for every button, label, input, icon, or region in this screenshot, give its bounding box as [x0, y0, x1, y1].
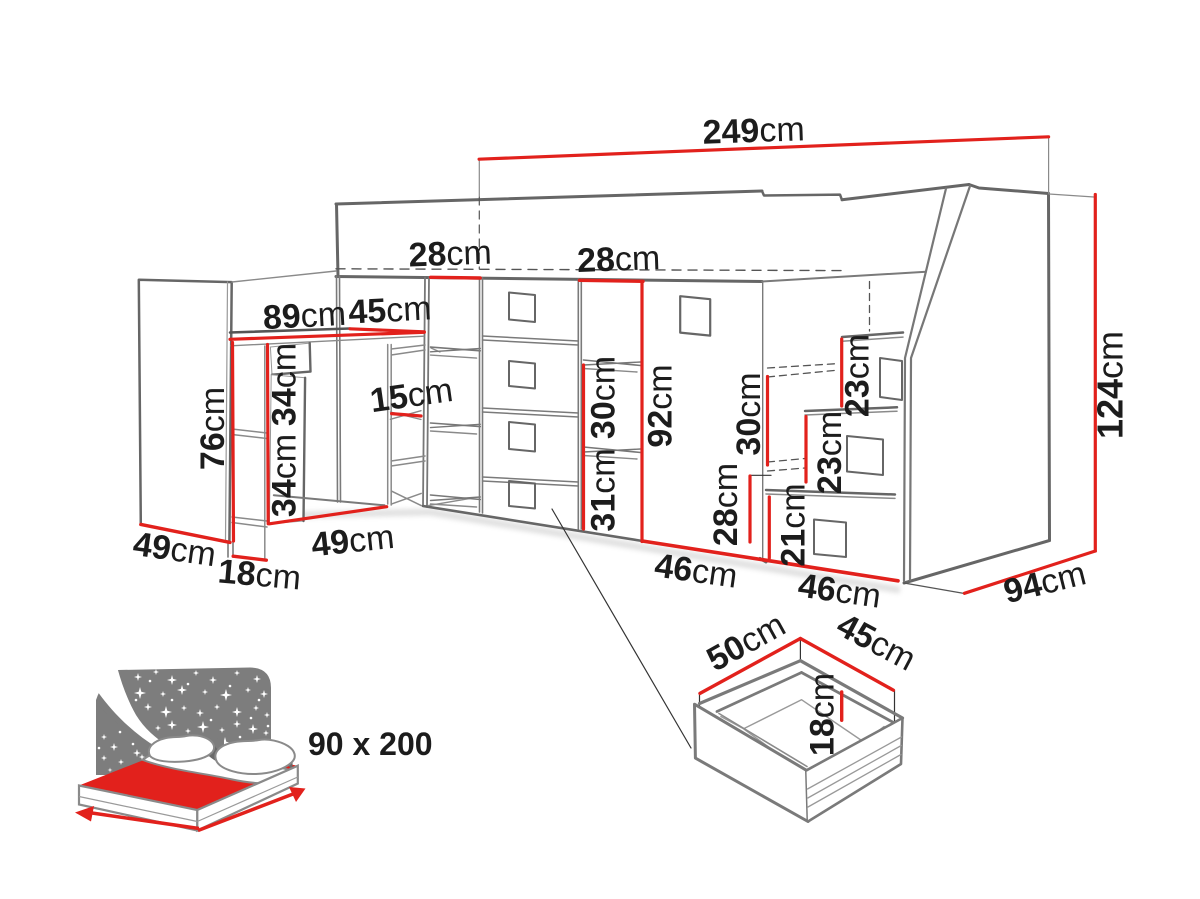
svg-text:21cm: 21cm	[775, 483, 813, 566]
svg-text:49cm: 49cm	[310, 518, 397, 564]
svg-text:45cm: 45cm	[347, 289, 432, 331]
svg-text:124cm: 124cm	[1090, 331, 1131, 439]
svg-text:94cm: 94cm	[1000, 554, 1090, 611]
svg-text:30cm: 30cm	[730, 372, 768, 455]
svg-text:31cm: 31cm	[585, 448, 623, 531]
svg-text:30cm: 30cm	[585, 356, 623, 439]
svg-text:89cm: 89cm	[262, 295, 347, 337]
svg-text:23cm: 23cm	[839, 334, 877, 417]
svg-text:18cm: 18cm	[216, 552, 302, 597]
svg-text:28cm: 28cm	[408, 234, 492, 275]
svg-text:45cm: 45cm	[831, 606, 922, 679]
svg-text:23cm: 23cm	[811, 411, 849, 494]
svg-text:34cm: 34cm	[266, 434, 304, 517]
svg-text:15cm: 15cm	[368, 371, 456, 420]
svg-text:28cm: 28cm	[576, 239, 660, 280]
svg-text:249cm: 249cm	[702, 110, 805, 152]
svg-text:76cm: 76cm	[194, 387, 232, 470]
svg-text:28cm: 28cm	[707, 463, 745, 546]
svg-text:46cm: 46cm	[796, 567, 884, 616]
svg-text:90 x 200: 90 x 200	[308, 726, 433, 762]
svg-text:34cm: 34cm	[266, 343, 304, 426]
svg-text:92cm: 92cm	[642, 364, 680, 447]
svg-text:18cm: 18cm	[804, 673, 842, 756]
